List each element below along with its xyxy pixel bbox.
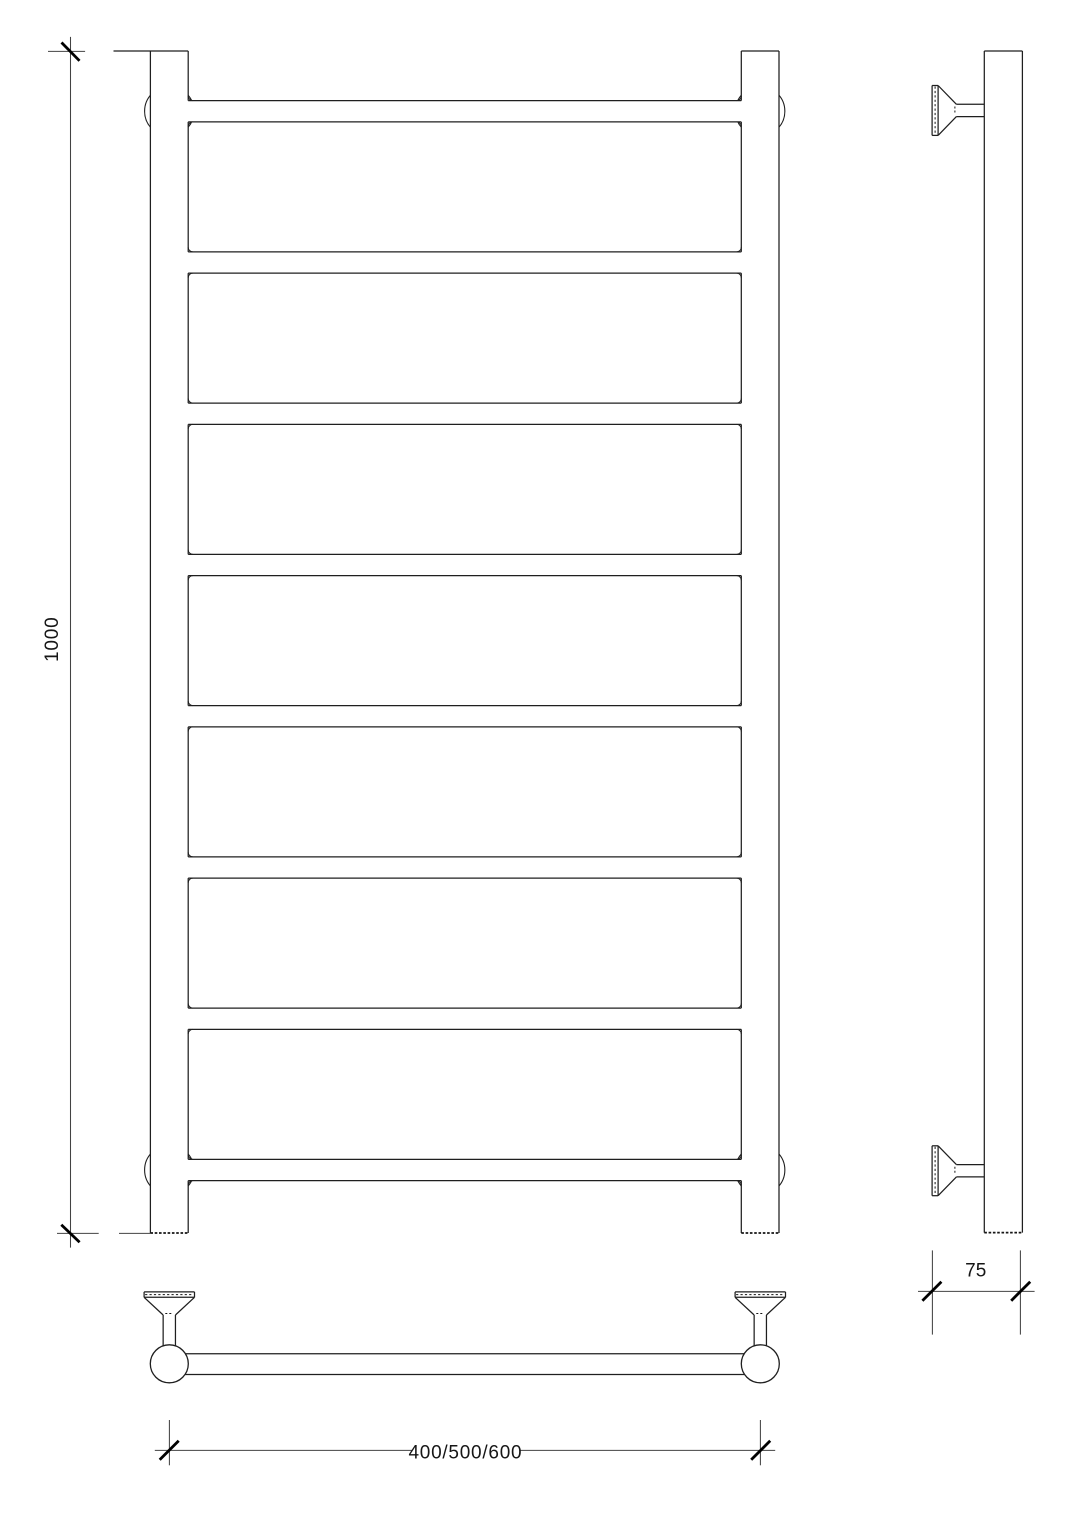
svg-text:1000: 1000 bbox=[42, 617, 63, 662]
svg-text:75: 75 bbox=[965, 1260, 986, 1281]
svg-text:400/500/600: 400/500/600 bbox=[408, 1443, 522, 1464]
